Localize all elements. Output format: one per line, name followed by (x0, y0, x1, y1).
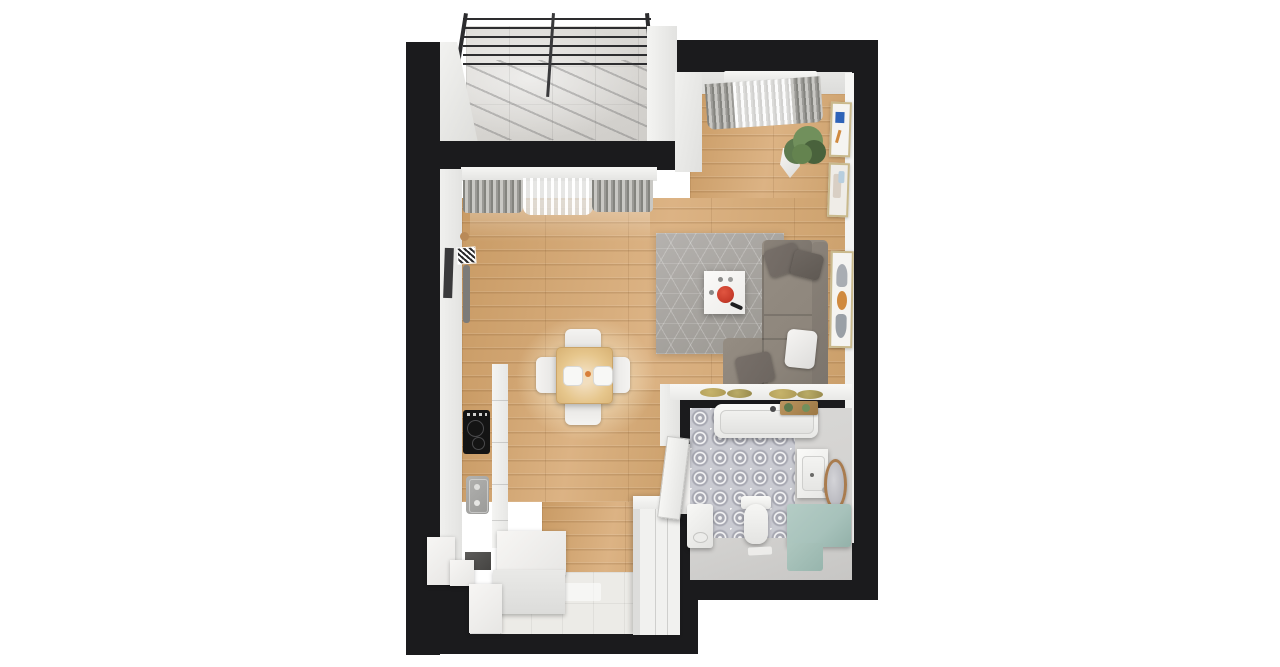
balcony-right-wall-pillar (647, 26, 677, 143)
cabinet-seam (492, 520, 508, 521)
table-decor-dot (718, 277, 723, 282)
plate (563, 366, 583, 386)
induction-cooktop (463, 410, 490, 454)
burner (472, 437, 485, 450)
caddy-plant (802, 404, 810, 412)
coffee-table (704, 271, 745, 314)
kitchen-island-front (493, 570, 565, 614)
balcony-glazed-roof-bars (463, 13, 651, 65)
tv-remote (730, 302, 744, 311)
wall-art-pale (827, 163, 850, 218)
bath-mat (748, 546, 772, 555)
living-curtain-right (592, 180, 653, 212)
bath-caddy (780, 401, 818, 415)
decor-bowl-red (717, 286, 734, 303)
sofa-seam (764, 314, 812, 316)
cabinet-seam (492, 484, 508, 485)
round-mirror (824, 459, 847, 510)
entry-mat (563, 583, 601, 601)
placemat (727, 389, 752, 398)
art-arc-bottom (835, 314, 846, 338)
floor-plan-render (0, 0, 1280, 667)
kitchen-sink (466, 476, 489, 514)
art-blue-shape (835, 112, 844, 123)
art-arc-top (836, 264, 847, 287)
cooktop-knobs (467, 413, 487, 416)
kitchen-countertop (462, 366, 492, 564)
basin-drain (810, 473, 814, 477)
corner-cabinet-white2 (450, 560, 474, 586)
sofa-pillow-white (784, 329, 818, 370)
decor-art-card (456, 246, 476, 264)
wall-bathroom-bottom (688, 580, 872, 600)
wardrobe-seam (655, 509, 656, 635)
toilet-bowl (744, 504, 768, 544)
plate (593, 366, 613, 386)
console-table-top (670, 384, 852, 400)
art-orange-ellipse (837, 291, 847, 310)
wall-tv (443, 248, 454, 298)
topright-left-wall-face (675, 72, 702, 172)
plant-foliage (784, 126, 824, 172)
washer-door (693, 532, 708, 543)
wall-art-arcs (829, 251, 854, 348)
wall-top-right (677, 40, 878, 73)
sink-faucet (474, 484, 480, 490)
kitchen-cabinet-front (492, 364, 508, 548)
table-decor-dot (728, 277, 733, 282)
burner (467, 420, 484, 437)
potted-plant (778, 126, 824, 182)
art-orange-stroke (835, 130, 841, 143)
placemat (769, 389, 797, 399)
wall-under-balcony (440, 141, 690, 170)
kitchen-island-top (497, 531, 566, 575)
topright-curtain (705, 76, 824, 130)
teal-bench (787, 504, 851, 547)
sink-drain (474, 500, 480, 506)
teal-bench-lower (787, 543, 823, 571)
bathtub-faucet (770, 406, 776, 412)
wall-bottom (406, 634, 698, 654)
media-sideboard (454, 227, 481, 331)
art-pale-blue (838, 171, 844, 183)
wardrobe-seam (667, 509, 668, 635)
placemat (797, 390, 823, 399)
balcony-glass-reflections (466, 60, 648, 140)
living-curtain-left (463, 180, 523, 213)
soundbar (463, 265, 470, 323)
cabinet-seam (492, 442, 508, 443)
table-decor-dot (709, 290, 714, 295)
topright-curtain-sheer (732, 78, 793, 128)
wall-art-blue (829, 102, 852, 158)
leaf-cluster (792, 144, 812, 164)
caddy-plant (784, 403, 793, 412)
shoe-cabinet (469, 584, 502, 633)
dining-table (556, 347, 613, 404)
cabinet-seam (492, 400, 508, 401)
toilet (741, 496, 771, 546)
washing-machine (687, 504, 713, 548)
living-curtain-sheer (523, 178, 593, 215)
placemat (700, 388, 726, 397)
wall-right (852, 40, 878, 600)
table-centerpiece (585, 371, 591, 377)
